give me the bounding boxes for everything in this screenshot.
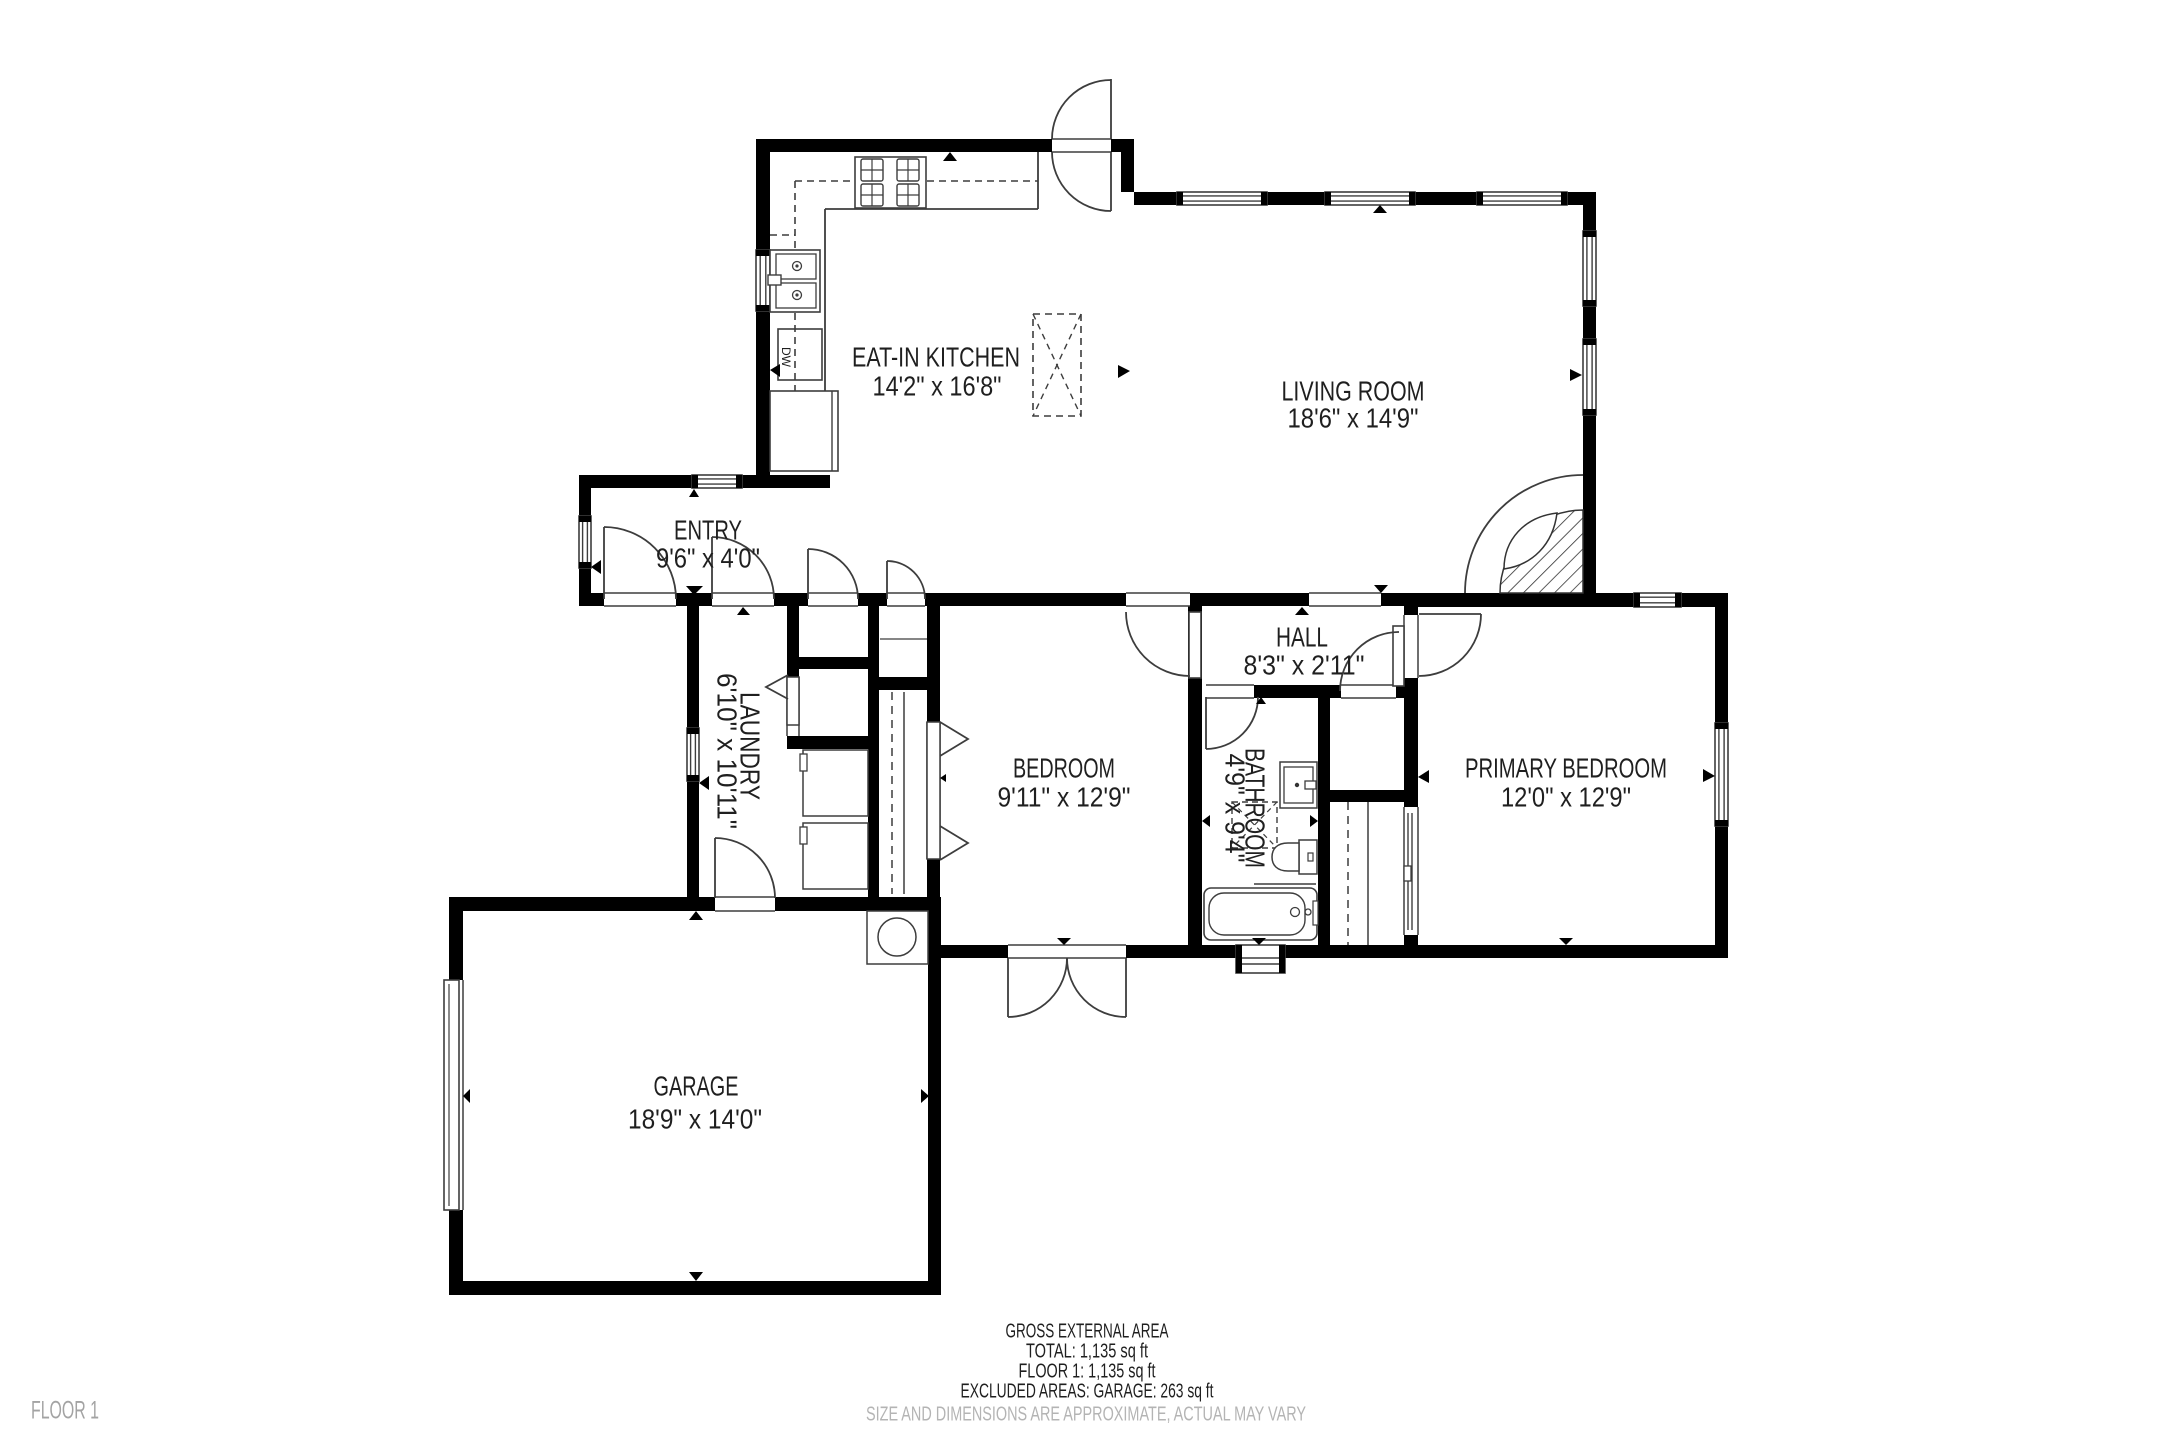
svg-text:GARAGE: GARAGE [654, 1070, 739, 1101]
svg-text:18'6" x 14'9": 18'6" x 14'9" [1288, 402, 1419, 433]
svg-text:8'3" x 2'11": 8'3" x 2'11" [1244, 649, 1365, 680]
svg-text:9'11" x 12'9": 9'11" x 12'9" [998, 781, 1131, 812]
svg-text:EXCLUDED AREAS: GARAGE: 263 sq: EXCLUDED AREAS: GARAGE: 263 sq ft [961, 1380, 1214, 1402]
svg-text:TOTAL: 1,135 sq ft: TOTAL: 1,135 sq ft [1026, 1340, 1148, 1362]
svg-text:FLOOR 1: 1,135 sq ft: FLOOR 1: 1,135 sq ft [1019, 1360, 1156, 1382]
svg-text:DW: DW [779, 347, 793, 368]
svg-text:14'2" x 16'8": 14'2" x 16'8" [873, 370, 1002, 401]
svg-text:4'9" x 9'4": 4'9" x 9'4" [1220, 754, 1251, 863]
svg-text:6'10" x 10'11": 6'10" x 10'11" [712, 673, 743, 829]
svg-text:EAT-IN KITCHEN: EAT-IN KITCHEN [852, 341, 1020, 372]
svg-text:GROSS EXTERNAL AREA: GROSS EXTERNAL AREA [1006, 1320, 1169, 1342]
svg-text:ENTRY: ENTRY [674, 514, 742, 545]
svg-text:FLOOR 1: FLOOR 1 [31, 1397, 99, 1425]
svg-text:SIZE AND DIMENSIONS ARE APPROX: SIZE AND DIMENSIONS ARE APPROXIMATE, ACT… [866, 1403, 1306, 1425]
svg-text:9'6" x 4'0": 9'6" x 4'0" [656, 542, 760, 573]
svg-text:18'9" x 14'0": 18'9" x 14'0" [628, 1103, 762, 1134]
svg-text:12'0" x 12'9": 12'0" x 12'9" [1501, 781, 1631, 812]
svg-text:PRIMARY BEDROOM: PRIMARY BEDROOM [1465, 752, 1667, 783]
svg-text:BEDROOM: BEDROOM [1013, 752, 1115, 783]
svg-text:HALL: HALL [1276, 621, 1328, 652]
